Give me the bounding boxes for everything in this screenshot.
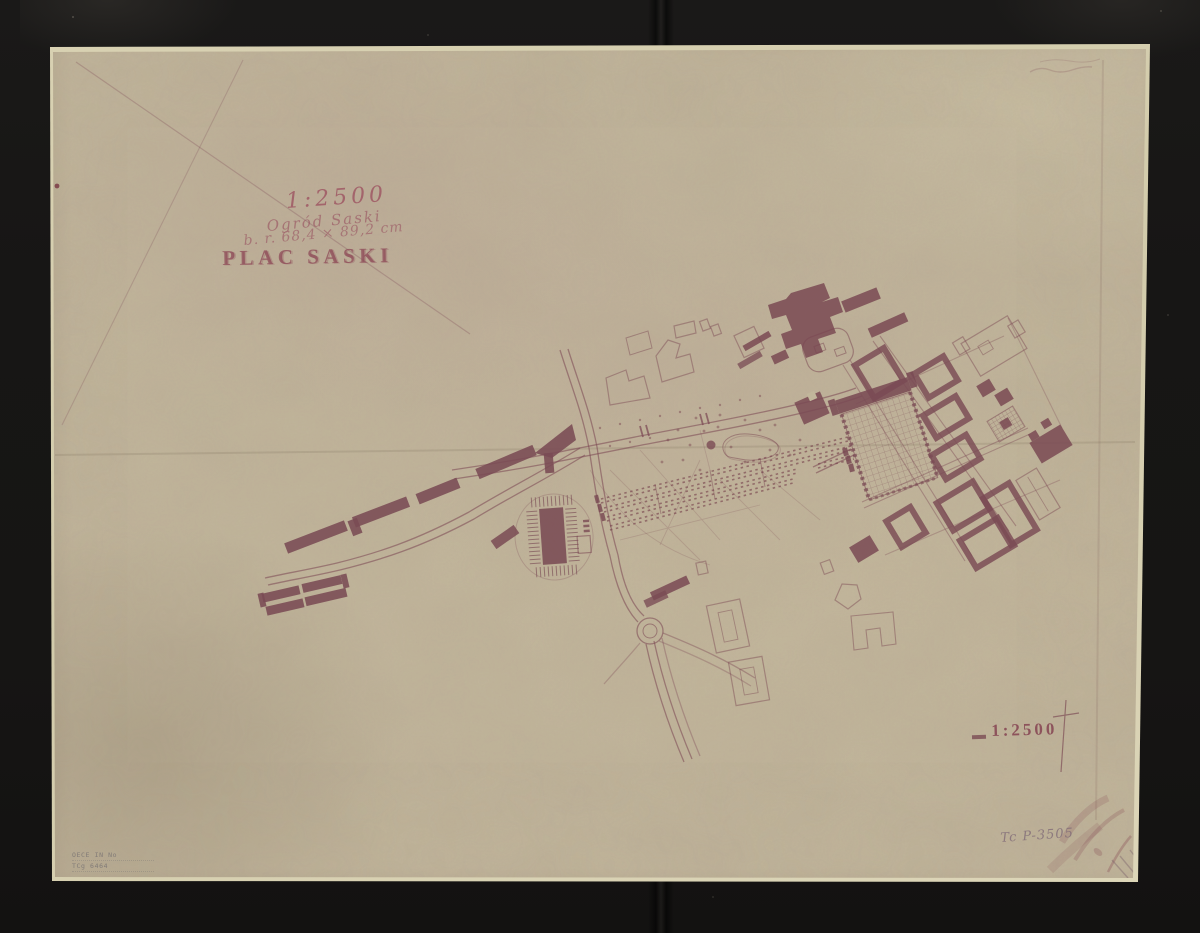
paper-grain [40, 40, 1155, 888]
stamp-line-1: OECE IN No [72, 850, 154, 861]
archival-map-scan: 1:2500 Ogród Saski b. r. 68,4 × 89,2 cm … [0, 0, 1200, 933]
map-drawing [0, 0, 1200, 933]
printed-title: PLAC SASKI [222, 243, 393, 271]
archive-stamp: OECE IN No TCg 6464 [72, 850, 154, 872]
printed-scale: 1:2500 [991, 719, 1058, 741]
fountain [707, 441, 716, 450]
stamp-line-2: TCg 6464 [72, 861, 154, 872]
